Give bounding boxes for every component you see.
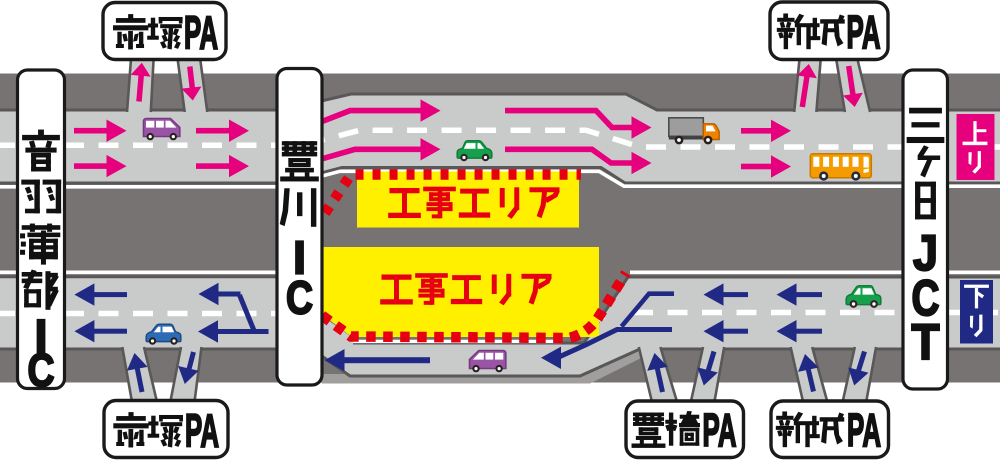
svg-text:PA: PA <box>847 6 881 58</box>
svg-text:C: C <box>286 272 313 324</box>
svg-text:PA: PA <box>703 404 737 456</box>
svg-text:C: C <box>28 344 55 396</box>
svg-text:PA: PA <box>847 404 881 456</box>
svg-text:T: T <box>912 314 940 370</box>
svg-text:PA: PA <box>184 7 218 59</box>
svg-text:PA: PA <box>185 405 219 457</box>
